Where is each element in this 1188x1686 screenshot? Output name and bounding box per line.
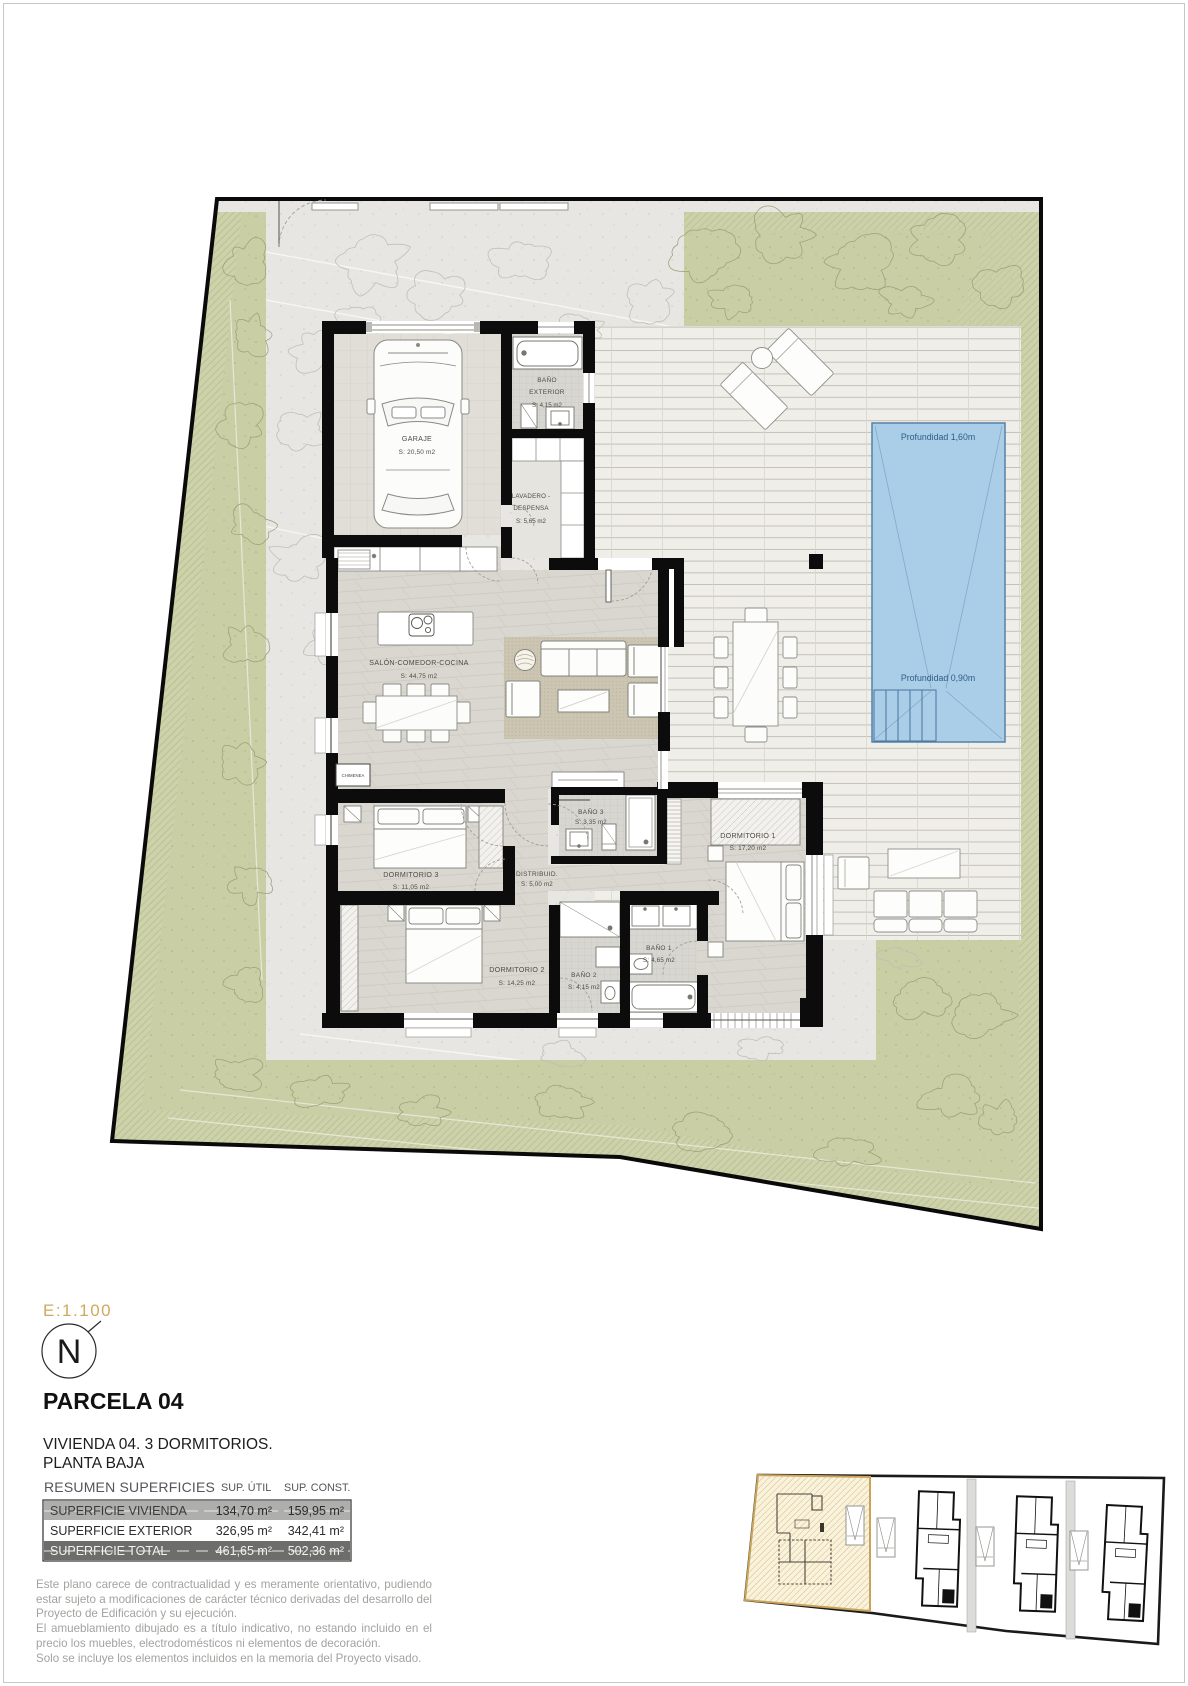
svg-text:S: 5,65 m2: S: 5,65 m2 <box>516 518 546 525</box>
svg-text:S: 5,00 m2: S: 5,00 m2 <box>521 881 553 888</box>
svg-text:S: 17,20 m2: S: 17,20 m2 <box>730 845 767 852</box>
svg-text:S: 4,65 m2: S: 4,65 m2 <box>643 957 675 964</box>
svg-text:LAVADERO -: LAVADERO - <box>512 493 551 500</box>
svg-text:PARCELA 04: PARCELA 04 <box>43 1388 184 1414</box>
svg-text:502,36 m²: 502,36 m² <box>288 1544 344 1558</box>
svg-text:S: 4,15 m2: S: 4,15 m2 <box>568 984 600 991</box>
svg-text:PLANTA BAJA: PLANTA BAJA <box>43 1455 145 1472</box>
svg-text:DORMITORIO 2: DORMITORIO 2 <box>489 966 545 974</box>
svg-text:S: 4,15 m2: S: 4,15 m2 <box>532 402 562 409</box>
svg-text:EXTERIOR: EXTERIOR <box>529 389 565 396</box>
svg-text:SALÓN-COMEDOR-COCINA: SALÓN-COMEDOR-COCINA <box>369 658 468 667</box>
svg-text:BAÑO 1: BAÑO 1 <box>646 943 672 952</box>
svg-text:326,95 m²: 326,95 m² <box>216 1524 272 1538</box>
svg-text:GARAJE: GARAJE <box>402 435 432 443</box>
svg-text:342,41 m²: 342,41 m² <box>288 1524 344 1538</box>
svg-text:461,65 m²: 461,65 m² <box>216 1544 272 1558</box>
svg-text:DORMITORIO 3: DORMITORIO 3 <box>383 871 439 879</box>
svg-text:S: 20,50 m2: S: 20,50 m2 <box>399 449 436 456</box>
svg-text:SUP. ÚTIL: SUP. ÚTIL <box>221 1481 271 1494</box>
svg-text:E:1.100: E:1.100 <box>43 1301 112 1320</box>
svg-text:159,95 m²: 159,95 m² <box>288 1504 344 1518</box>
svg-text:S: 44,75 m2: S: 44,75 m2 <box>401 673 438 680</box>
svg-text:SUPERFICIE TOTAL: SUPERFICIE TOTAL <box>50 1544 167 1558</box>
svg-text:SUP. CONST.: SUP. CONST. <box>284 1482 350 1494</box>
svg-text:BAÑO: BAÑO <box>537 375 557 384</box>
svg-text:DISTRIBUID.: DISTRIBUID. <box>516 871 558 878</box>
svg-text:CHIMENEA: CHIMENEA <box>342 773 365 778</box>
svg-text:RESUMEN SUPERFICIES: RESUMEN SUPERFICIES <box>44 1479 215 1495</box>
svg-text:SUPERFICIE VIVIENDA: SUPERFICIE VIVIENDA <box>50 1504 187 1518</box>
svg-text:Profundidad 0,90m: Profundidad 0,90m <box>901 673 975 683</box>
svg-text:N: N <box>57 1333 82 1371</box>
svg-text:S: 11,05 m2: S: 11,05 m2 <box>393 884 429 891</box>
svg-text:BAÑO 3: BAÑO 3 <box>578 807 604 816</box>
svg-text:S: 14,25 m2: S: 14,25 m2 <box>499 980 536 987</box>
svg-text:DESPENSA: DESPENSA <box>513 505 549 512</box>
svg-text:DORMITORIO 1: DORMITORIO 1 <box>720 832 776 840</box>
svg-text:Profundidad 1,60m: Profundidad 1,60m <box>901 432 975 442</box>
svg-text:134,70 m²: 134,70 m² <box>216 1504 272 1518</box>
svg-text:VIVIENDA 04. 3 DORMITORIOS.: VIVIENDA 04. 3 DORMITORIOS. <box>43 1436 273 1453</box>
svg-text:S: 3,35 m2: S: 3,35 m2 <box>575 819 607 826</box>
svg-text:BAÑO 2: BAÑO 2 <box>571 970 597 979</box>
svg-text:SUPERFICIE EXTERIOR: SUPERFICIE EXTERIOR <box>50 1524 192 1538</box>
